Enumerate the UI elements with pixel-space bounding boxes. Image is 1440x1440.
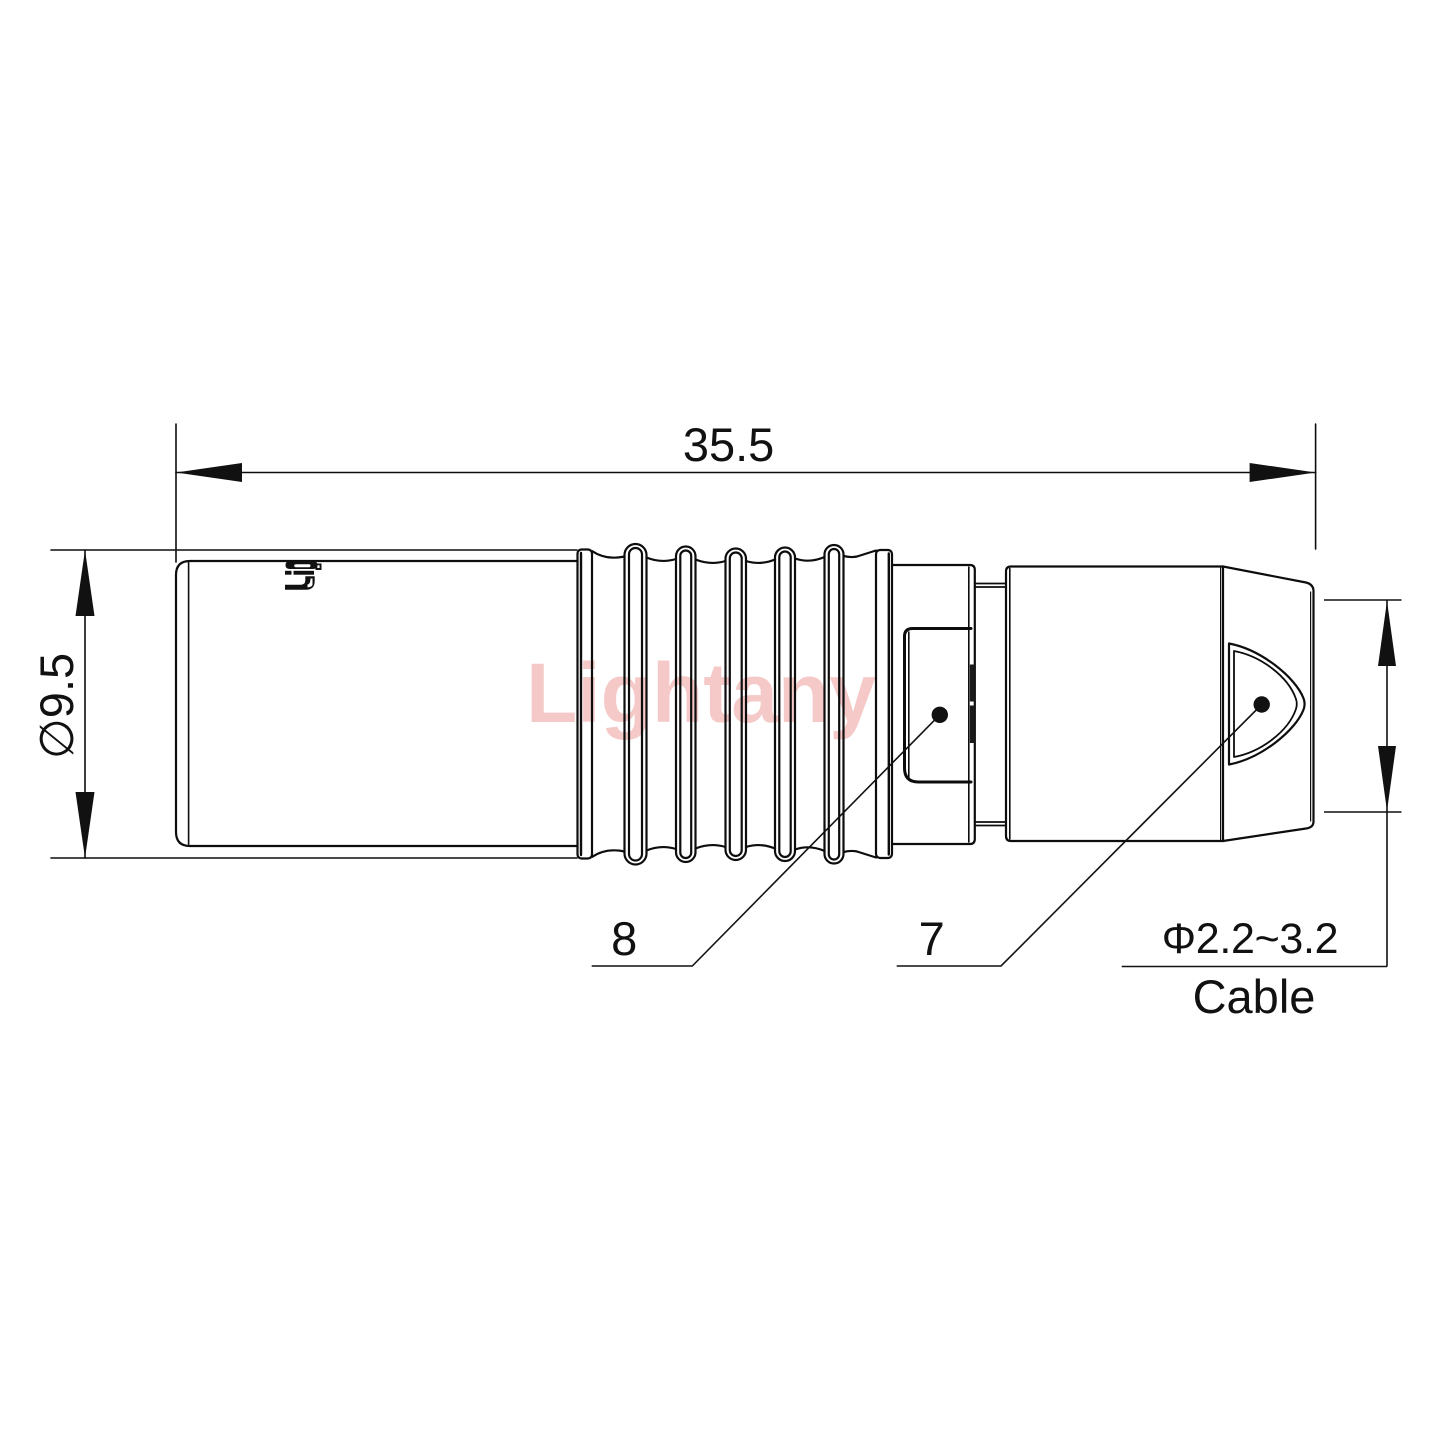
svg-text:Φ2.2~3.2: Φ2.2~3.2 — [1162, 915, 1339, 963]
svg-text:∅9.5: ∅9.5 — [30, 653, 83, 759]
svg-text:8: 8 — [611, 912, 637, 965]
svg-text:Cable: Cable — [1193, 970, 1316, 1023]
svg-text:7: 7 — [919, 912, 945, 965]
svg-text:35.5: 35.5 — [683, 418, 774, 471]
